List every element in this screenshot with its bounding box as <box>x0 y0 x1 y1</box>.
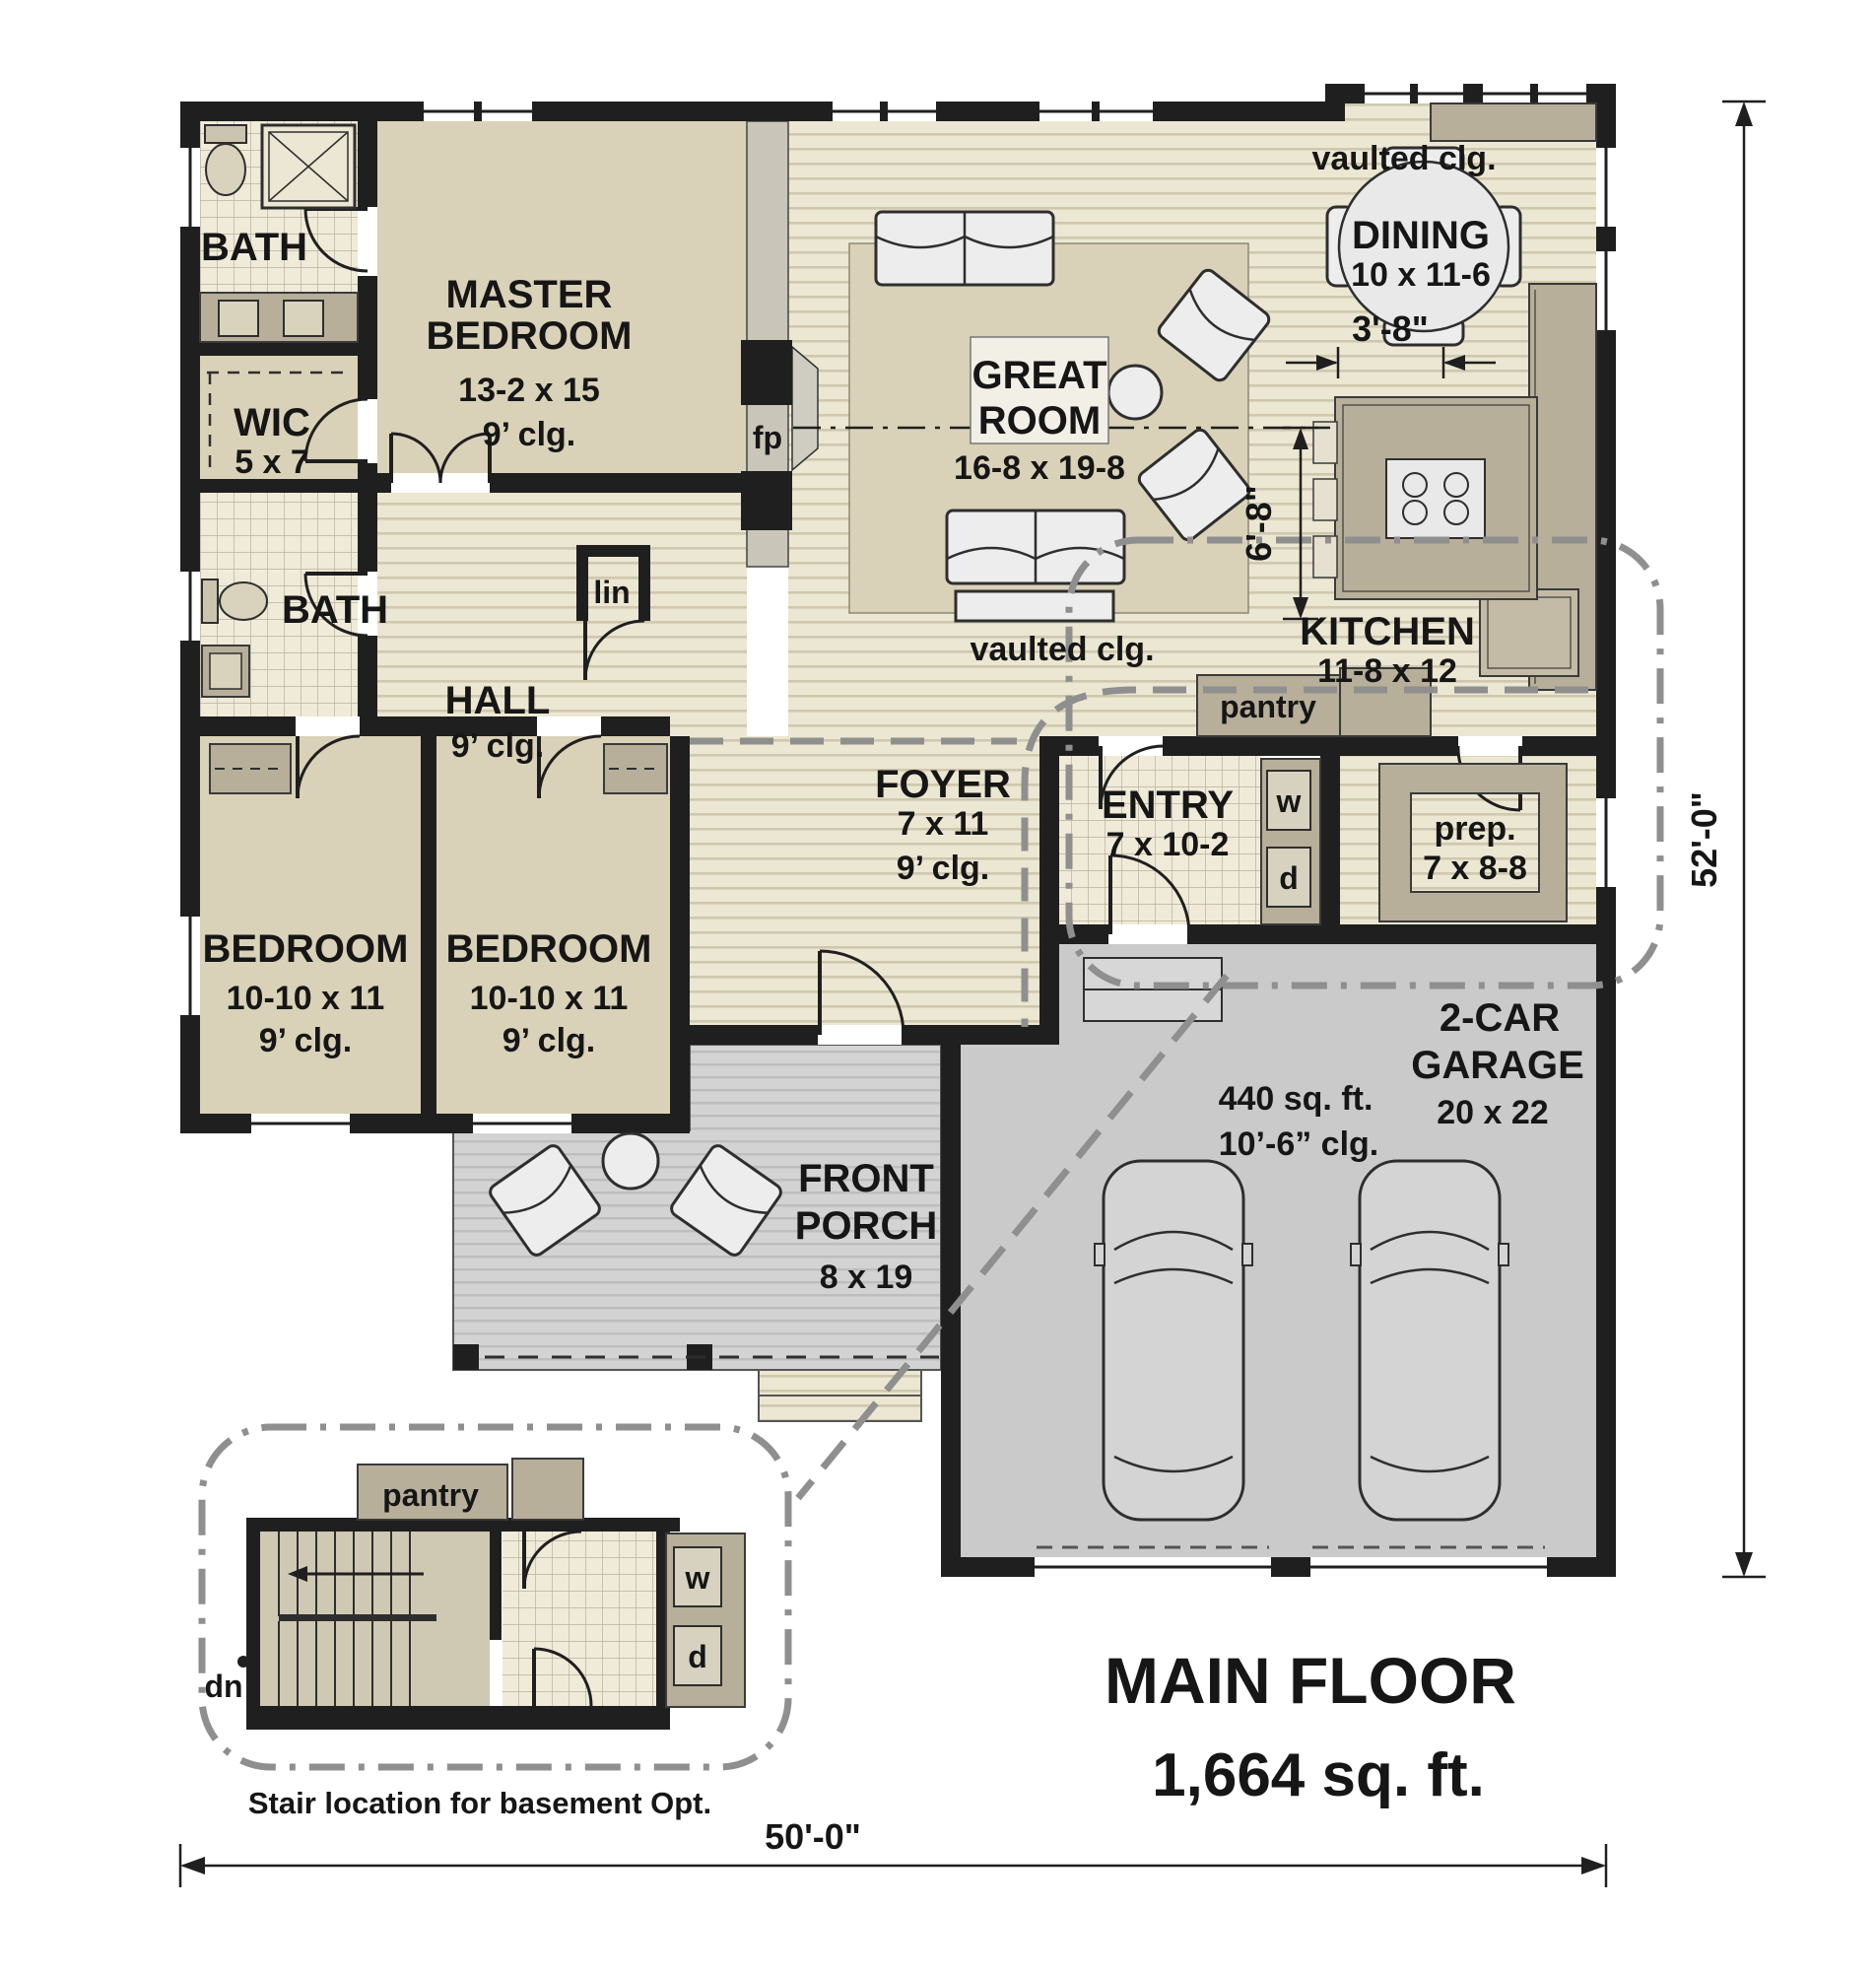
dim-50-0 <box>180 1844 1606 1887</box>
toilet-tank <box>205 125 246 143</box>
porch-label-1: FRONT <box>798 1157 934 1200</box>
inset-caption: Stair location for basement Opt. <box>248 1786 711 1820</box>
toilet-bowl <box>206 144 245 195</box>
bedroom2-closet <box>210 744 291 793</box>
wall-segment <box>421 736 436 1114</box>
bedroom2-ceiling: 9’ clg. <box>259 1022 353 1059</box>
kitchen-label: KITCHEN <box>1300 610 1475 653</box>
wall-segment <box>180 102 1345 121</box>
hall-label: HALL <box>445 679 551 722</box>
coffee-table <box>956 591 1113 621</box>
stove <box>1386 459 1485 538</box>
master-size: 13-2 x 15 <box>458 372 600 409</box>
floor-plan-drawing: BATH MASTER BEDROOM 13-2 x 15 9’ clg. WI… <box>0 0 1876 1971</box>
bedroom3-closet <box>604 744 667 793</box>
washer-label: w <box>1276 784 1302 819</box>
bath1-vanity <box>200 293 358 342</box>
dim-label-50-0: 50'-0" <box>765 1816 861 1857</box>
window <box>1365 84 1463 103</box>
window <box>180 148 200 227</box>
porch-post <box>453 1344 479 1370</box>
master-label-1: MASTER <box>446 273 613 316</box>
hall-ceiling: 9’ clg. <box>451 727 545 765</box>
wic-size: 5 x 7 <box>234 443 309 481</box>
floor-plan-page: BATH MASTER BEDROOM 13-2 x 15 9’ clg. WI… <box>0 0 1876 1971</box>
vaulted-ceiling-note-top: vaulted clg. <box>1311 140 1496 177</box>
window <box>833 102 936 121</box>
foyer-ceiling: 9’ clg. <box>897 850 990 887</box>
toilet-tank <box>202 579 218 623</box>
foyer-size: 7 x 11 <box>898 805 989 843</box>
dining-size: 10 x 11-6 <box>1351 256 1491 294</box>
fireplace-hearth <box>792 347 818 470</box>
inset-pantry-label: pantry <box>382 1477 479 1513</box>
firebox-upper <box>741 340 792 405</box>
porch-label-2: PORCH <box>795 1204 937 1248</box>
window <box>180 917 200 1015</box>
entry-size: 7 x 10-2 <box>1106 826 1230 863</box>
wall-segment <box>1320 736 1340 944</box>
dining-label: DINING <box>1352 214 1490 257</box>
bath2-label: BATH <box>282 588 388 632</box>
master-ceiling: 9’ clg. <box>483 416 576 453</box>
garage-label-2: GARAGE <box>1411 1044 1584 1087</box>
inset-washer-label: w <box>685 1560 710 1596</box>
wall-segment <box>200 342 358 356</box>
great-room-label-2: ROOM <box>978 399 1101 443</box>
great-room-size: 16-8 x 19-8 <box>954 449 1125 487</box>
window <box>1483 84 1586 103</box>
foyer-label: FOYER <box>875 763 1011 806</box>
bath2-sink-bowl <box>210 653 241 689</box>
sofa <box>947 511 1124 583</box>
wall-segment <box>246 1518 260 1720</box>
kitchen-island <box>1313 397 1537 599</box>
vaulted-ceiling-note-center: vaulted clg. <box>970 631 1154 668</box>
window <box>251 1114 350 1133</box>
inset-down-label: dn <box>204 1669 242 1704</box>
dim-label-6-8: 6'-8" <box>1239 485 1279 562</box>
dim-label-52-0: 52'-0" <box>1684 791 1724 888</box>
wall-segment <box>670 736 690 1133</box>
window <box>1039 102 1153 121</box>
bedroom3-label: BEDROOM <box>446 927 652 971</box>
wall-segment <box>1039 736 1059 1045</box>
inset-cabinet <box>512 1459 583 1520</box>
inset-dryer-label: d <box>688 1639 707 1674</box>
wall-segment <box>246 1706 670 1730</box>
shower <box>262 125 355 208</box>
fridge <box>1480 589 1578 676</box>
bedroom2-size: 10-10 x 11 <box>227 980 385 1017</box>
bar-stool <box>1313 479 1337 520</box>
car <box>1351 1161 1508 1520</box>
garage-ceiling: 10’-6” clg. <box>1219 1125 1379 1163</box>
dim-52-0 <box>1722 102 1766 1577</box>
wall-segment <box>576 545 588 621</box>
floor-hall <box>377 493 747 736</box>
dim-label-3-8: 3'-8" <box>1352 308 1429 349</box>
great-room-label-1: GREAT <box>971 354 1106 397</box>
garage-label-1: 2-CAR <box>1440 996 1560 1040</box>
bedroom3-size: 10-10 x 11 <box>470 980 629 1017</box>
linen-label: lin <box>593 575 630 610</box>
basement-stair-inset <box>202 1427 788 1767</box>
porch-table <box>603 1133 658 1189</box>
plan-area: 1,664 sq. ft. <box>1152 1741 1485 1809</box>
firebox-lower <box>741 471 792 530</box>
window <box>180 572 200 641</box>
sofa <box>876 212 1053 285</box>
entry-label: ENTRY <box>1102 784 1234 827</box>
prep-label: prep. <box>1434 810 1515 848</box>
window <box>1596 148 1616 227</box>
wall-segment <box>1325 84 1345 121</box>
wall-segment <box>200 479 358 493</box>
side-table <box>1108 366 1162 419</box>
garage-size: 20 x 22 <box>1437 1094 1548 1131</box>
pantry-label: pantry <box>1220 689 1316 724</box>
dining-buffet <box>1431 103 1596 141</box>
prep-size: 7 x 8-8 <box>1423 850 1527 887</box>
toilet-bowl <box>220 582 267 620</box>
bedroom3-ceiling: 9’ clg. <box>502 1022 596 1059</box>
dryer-label: d <box>1279 860 1299 896</box>
window <box>1596 251 1616 330</box>
bedroom2-label: BEDROOM <box>203 927 409 971</box>
kitchen-size: 11-8 x 12 <box>1317 652 1457 690</box>
garage-step <box>1084 989 1222 1021</box>
fireplace-label: fp <box>753 420 782 455</box>
window <box>424 102 532 121</box>
window <box>473 1114 571 1133</box>
wall-segment <box>490 1532 502 1640</box>
garage-area: 440 sq. ft. <box>1219 1080 1373 1118</box>
wic-label: WIC <box>234 401 310 444</box>
car <box>1095 1161 1252 1520</box>
plan-title: MAIN FLOOR <box>1105 1644 1516 1717</box>
porch-size: 8 x 19 <box>820 1259 913 1296</box>
master-label-2: BEDROOM <box>427 314 633 358</box>
bath1-label: BATH <box>201 226 307 269</box>
wall-segment <box>638 545 650 621</box>
window <box>1596 798 1616 887</box>
